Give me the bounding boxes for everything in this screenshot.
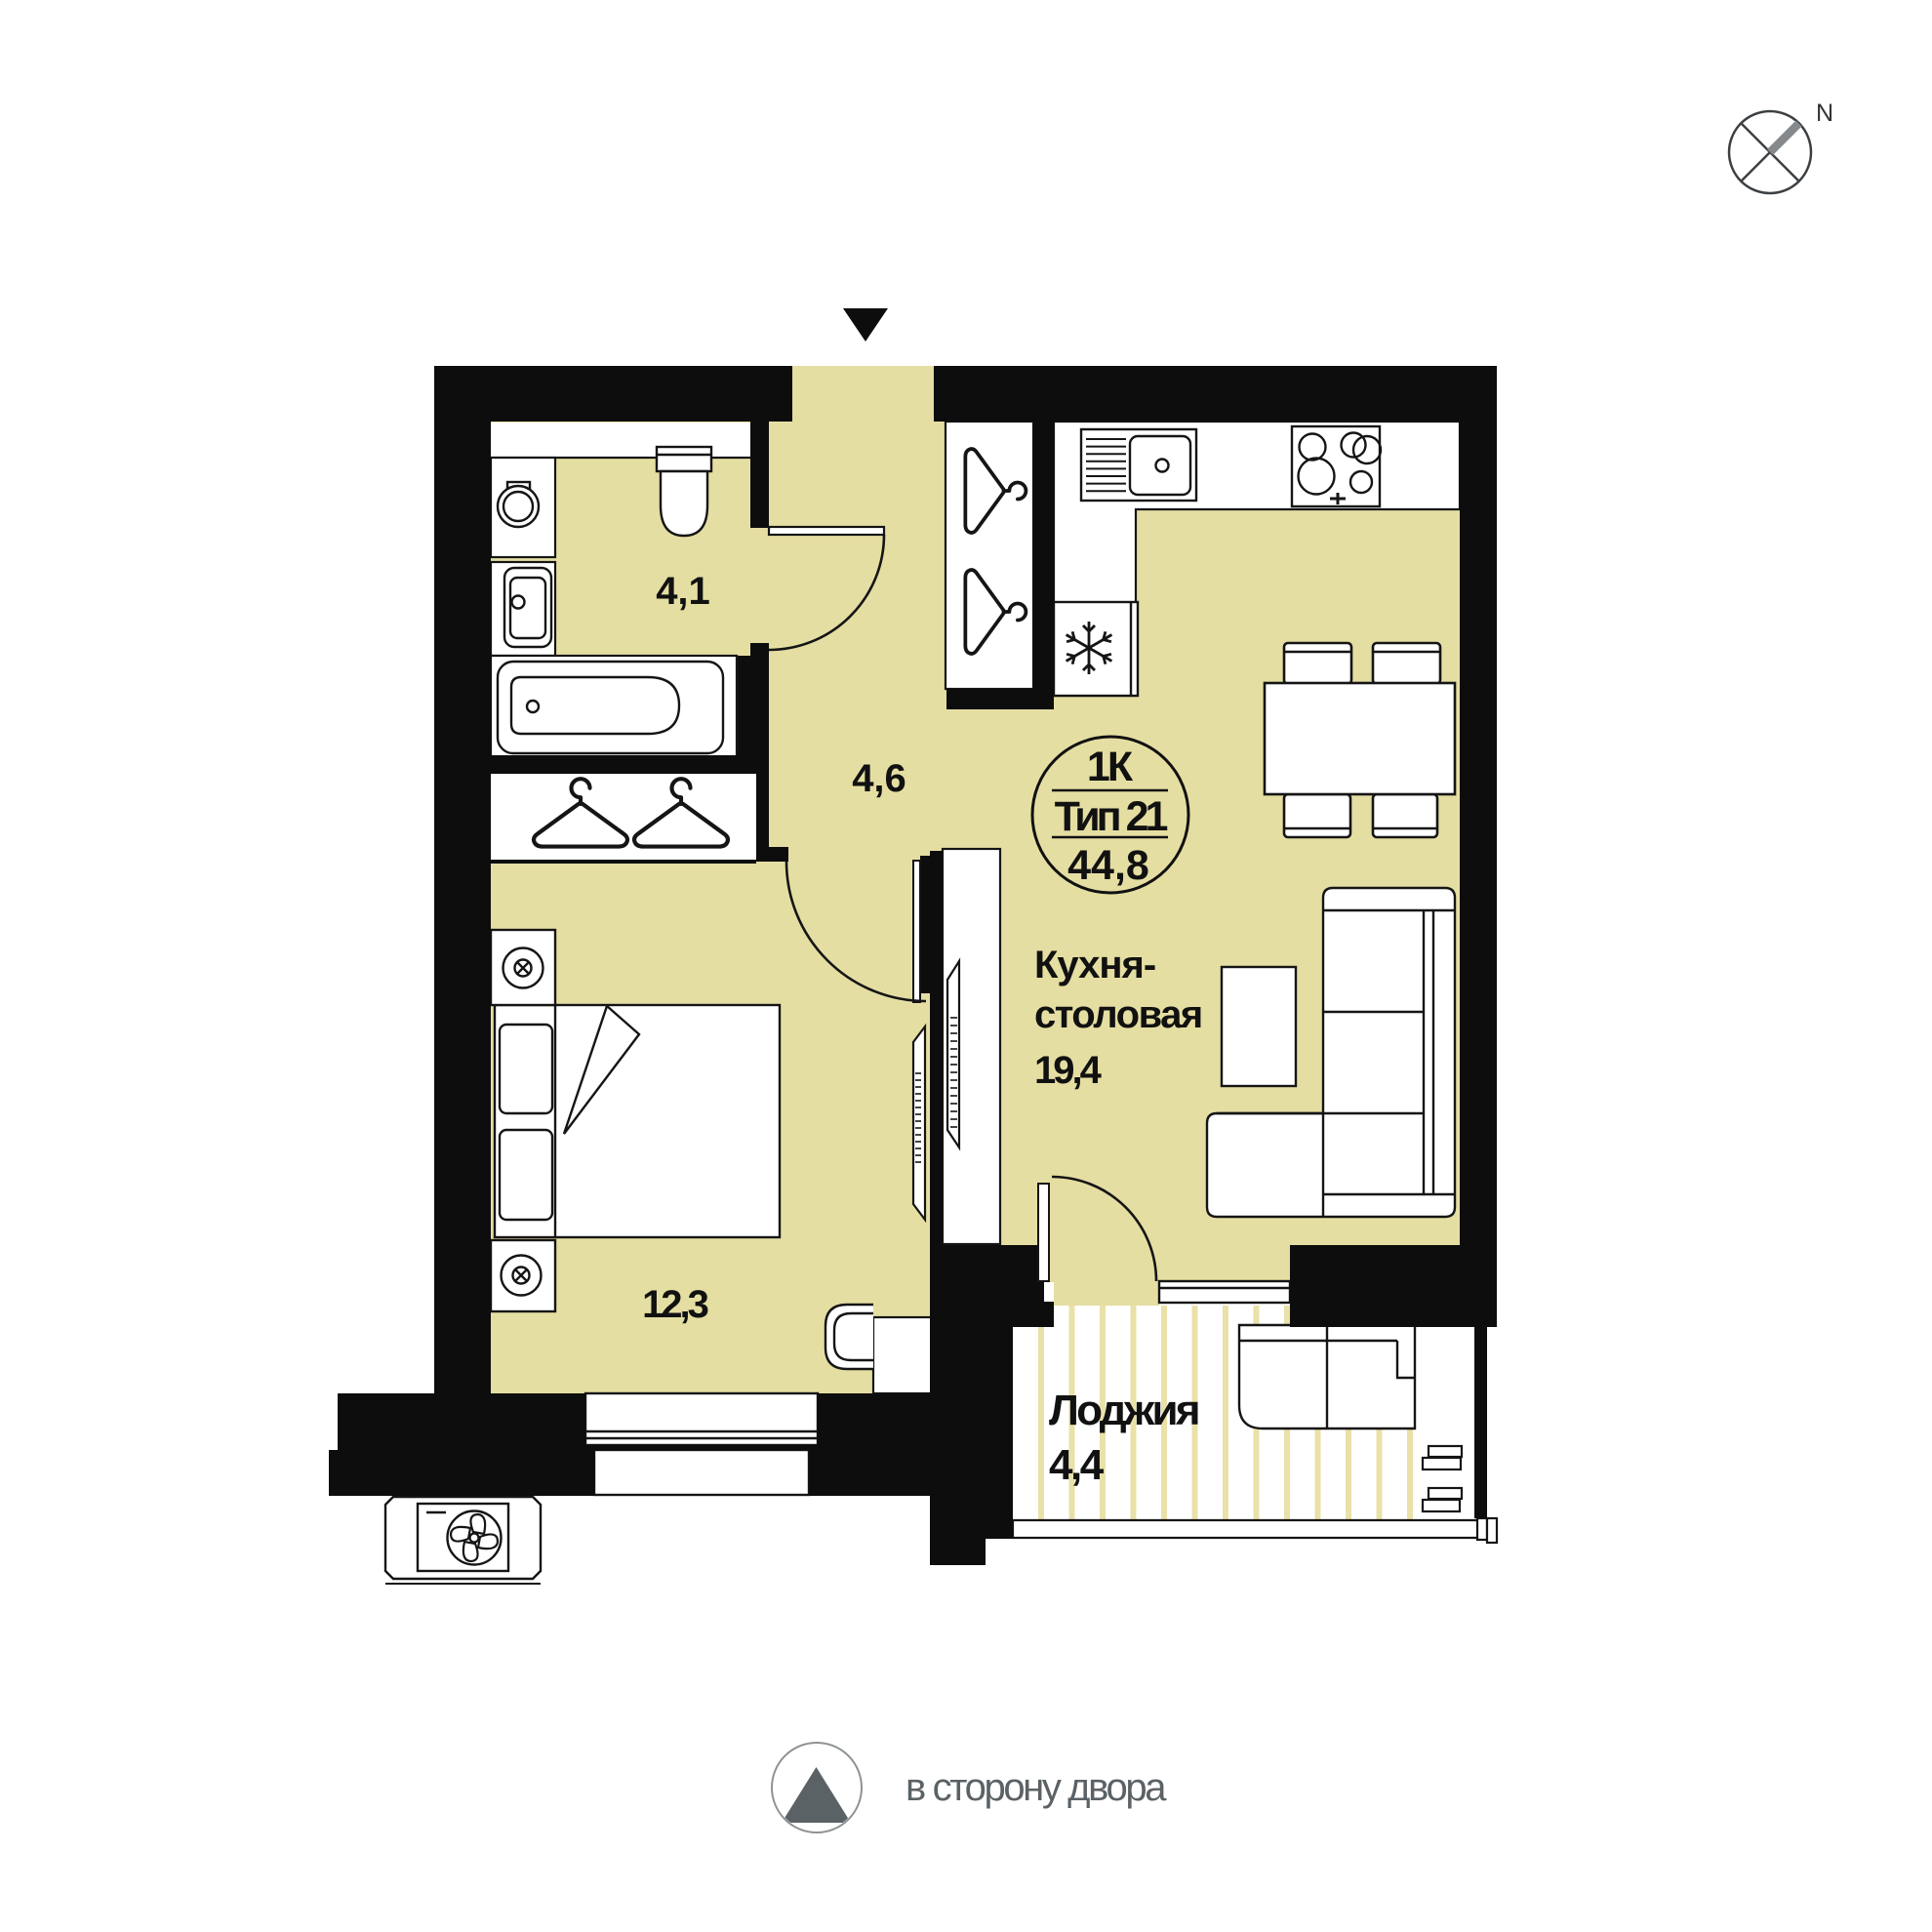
svg-text:Лоджия: Лоджия <box>1049 1387 1198 1434</box>
svg-text:в сторону двора: в сторону двора <box>906 1766 1167 1809</box>
svg-text:12,3: 12,3 <box>642 1283 708 1326</box>
svg-text:Тип 21: Тип 21 <box>1055 793 1168 840</box>
svg-text:1К: 1К <box>1087 744 1134 790</box>
svg-text:N: N <box>1816 100 1833 127</box>
svg-text:4,4: 4,4 <box>1049 1441 1105 1489</box>
svg-text:44,8: 44,8 <box>1067 842 1149 889</box>
svg-text:Кухня-: Кухня- <box>1034 944 1155 986</box>
svg-text:4,6: 4,6 <box>852 757 906 800</box>
svg-text:19,4: 19,4 <box>1034 1049 1103 1092</box>
svg-text:столовая: столовая <box>1034 993 1202 1036</box>
svg-text:4,1: 4,1 <box>656 570 710 613</box>
